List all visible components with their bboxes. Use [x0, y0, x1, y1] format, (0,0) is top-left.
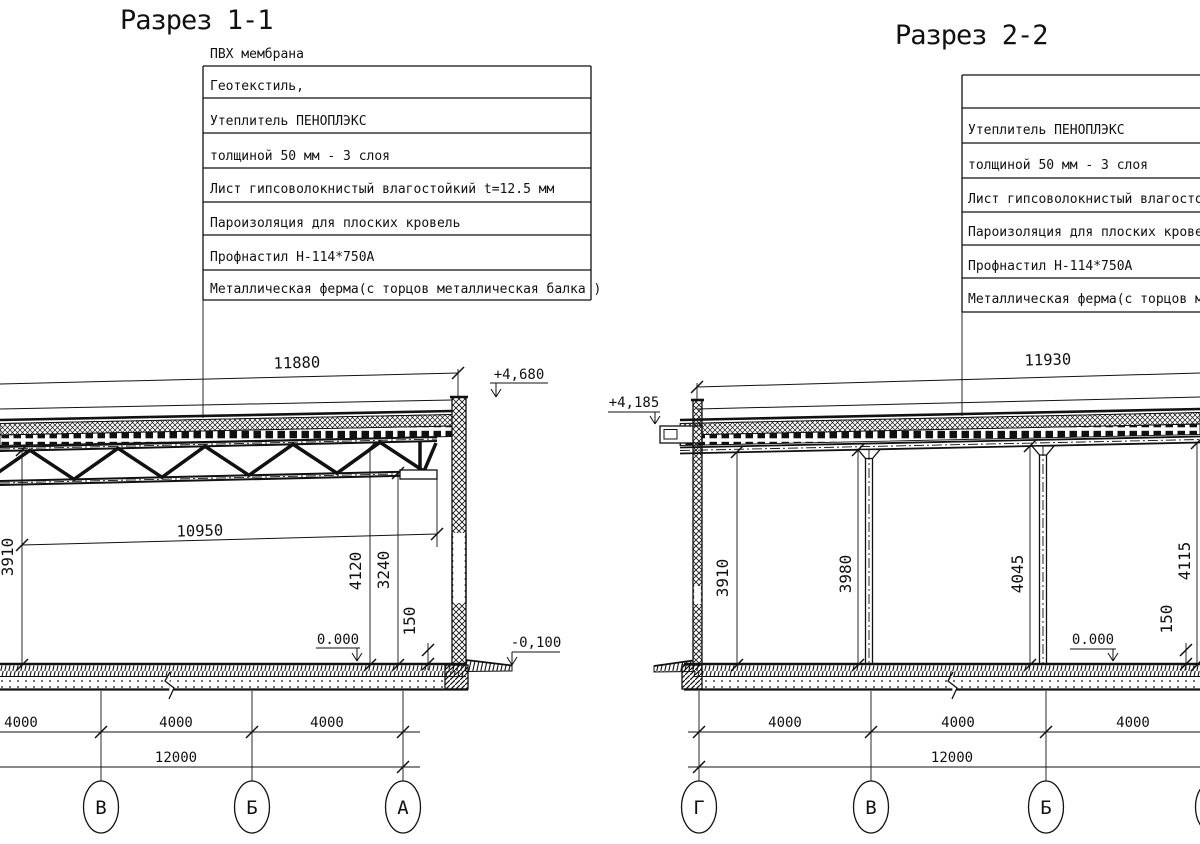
left-section-title: Разрез 1-1 [120, 5, 273, 36]
dim-label-span-top: 11930 [1024, 350, 1071, 369]
wall-opening [694, 586, 701, 604]
left-axis-bubbles: В Б А [84, 781, 421, 833]
right-callout-row: Профнастил Н-114*750А [968, 259, 1133, 274]
left-callout-table: ПВХ мембрана Геотекстиль, Утеплитель ПЕН… [203, 47, 601, 418]
level-label-floor: 0.000 [1072, 632, 1114, 648]
right-section-drawing: Разрез 2-2 Утеплитель ПЕНОПЛЭКС толщиной… [608, 20, 1200, 833]
left-callout-row: Геотекстиль, [210, 79, 304, 94]
dim-label-slab: 150 [1157, 605, 1176, 634]
dim-label-bay: 4000 [4, 715, 38, 731]
right-roof-assembly [660, 409, 1200, 454]
dim-label-height: 3910 [713, 559, 732, 598]
right-top-dimension: 11930 [691, 350, 1200, 409]
axis-bubble [1196, 781, 1200, 833]
dim-label-height: 3980 [836, 555, 855, 594]
right-axis-bubbles: Г В Б А [682, 781, 1200, 833]
right-callout-row: Лист гипсоволокнистый влагостойкий t=12.… [968, 192, 1200, 207]
axis-bubble-letter: В [95, 797, 106, 819]
right-vertical-dimensions: 3910 3980 4045 4115 150 [713, 437, 1200, 671]
dim-label-span-top: 11880 [273, 353, 320, 372]
truss-bearing [400, 470, 437, 479]
dim-label-height-top: 4120 [346, 552, 365, 591]
left-end-wall [450, 397, 468, 665]
section-drawing-canvas: Разрез 1-1 ПВХ мембрана Геотекстиль, Уте… [0, 0, 1200, 844]
dim-label-span-chord: 10950 [176, 521, 223, 540]
screed-hatch [693, 666, 1200, 677]
far-parapet-line [697, 397, 1200, 409]
axis-bubble-letter: В [865, 797, 876, 819]
dim-label-slab: 150 [400, 607, 419, 636]
dim-label-bay: 4000 [768, 715, 802, 731]
dim-label-bay: 4000 [159, 715, 193, 731]
dim-label-height: 4045 [1008, 555, 1027, 594]
wall-opening [453, 533, 464, 603]
left-callout-row: Металлическая ферма(с торцов металлическ… [210, 282, 601, 297]
level-label-floor: 0.000 [317, 632, 359, 648]
level-label-roof: +4,680 [494, 367, 545, 383]
right-section-title: Разрез 2-2 [895, 20, 1048, 51]
left-callout-row: толщиной 50 мм - 3 слоя [210, 149, 390, 164]
right-callout-row: толщиной 50 мм - 3 слоя [968, 158, 1148, 173]
right-roof-elevation-mark: +4,185 [608, 395, 660, 424]
right-callout-table: Утеплитель ПЕНОПЛЭКС толщиной 50 мм - 3 … [962, 75, 1200, 416]
right-callout-row: Пароизоляция для плоских кровель [968, 225, 1200, 240]
left-floor-level-mark: 0.000 [316, 632, 362, 661]
level-label-roof: +4,185 [609, 395, 660, 411]
left-membrane-label: ПВХ мембрана [210, 47, 304, 62]
axis-bubble-letter: Б [1040, 797, 1051, 819]
axis-bubble-letter: А [397, 797, 409, 819]
left-callout-row: Лист гипсоволокнистый влагостойкий t=12.… [210, 182, 555, 197]
left-callout-row: Пароизоляция для плоских кровель [210, 216, 460, 231]
axis-bubble-letter: Б [246, 797, 257, 819]
left-roof-elevation-mark: +4,680 [490, 367, 548, 397]
foundation-block [445, 665, 468, 689]
left-top-dimension: 11880 [0, 353, 464, 409]
dim-label-total: 12000 [155, 750, 197, 766]
left-callout-row: Профнастил Н-114*750А [210, 250, 375, 265]
drawing-sheet: Разрез 1-1 ПВХ мембрана Геотекстиль, Уте… [0, 0, 1200, 844]
dim-label-bay: 4000 [941, 715, 975, 731]
right-bottom-dimensions: 4000 4000 4000 12000 [688, 691, 1200, 781]
eave-detail [664, 430, 677, 440]
left-floor-slab [0, 660, 512, 699]
right-callout-row: Утеплитель ПЕНОПЛЭКС [968, 123, 1125, 138]
level-label-grade: -0,100 [511, 635, 562, 651]
far-parapet-line [0, 400, 452, 409]
dim-label-bay: 4000 [310, 715, 344, 731]
dim-label-total: 12000 [931, 750, 973, 766]
dim-label-height: 4115 [1175, 542, 1194, 581]
right-end-wall [691, 400, 704, 665]
right-floor-level-mark: 0.000 [1070, 632, 1118, 661]
dim-label-height-left: 3910 [0, 538, 17, 577]
left-section-drawing: Разрез 1-1 ПВХ мембрана Геотекстиль, Уте… [0, 5, 601, 833]
axis-bubble-letter: Г [693, 797, 704, 819]
bedding-dots [0, 677, 445, 689]
dim-label-height-chord: 3240 [374, 551, 393, 590]
left-bottom-dimensions: 4000 4000 4000 12000 [0, 691, 420, 781]
left-grade-level-mark: -0,100 [507, 635, 561, 665]
dim-label-bay: 4000 [1116, 715, 1150, 731]
left-callout-row: Утеплитель ПЕНОПЛЭКС [210, 114, 367, 129]
right-callout-row: Металлическая ферма(с торцов металлическ… [968, 292, 1200, 307]
